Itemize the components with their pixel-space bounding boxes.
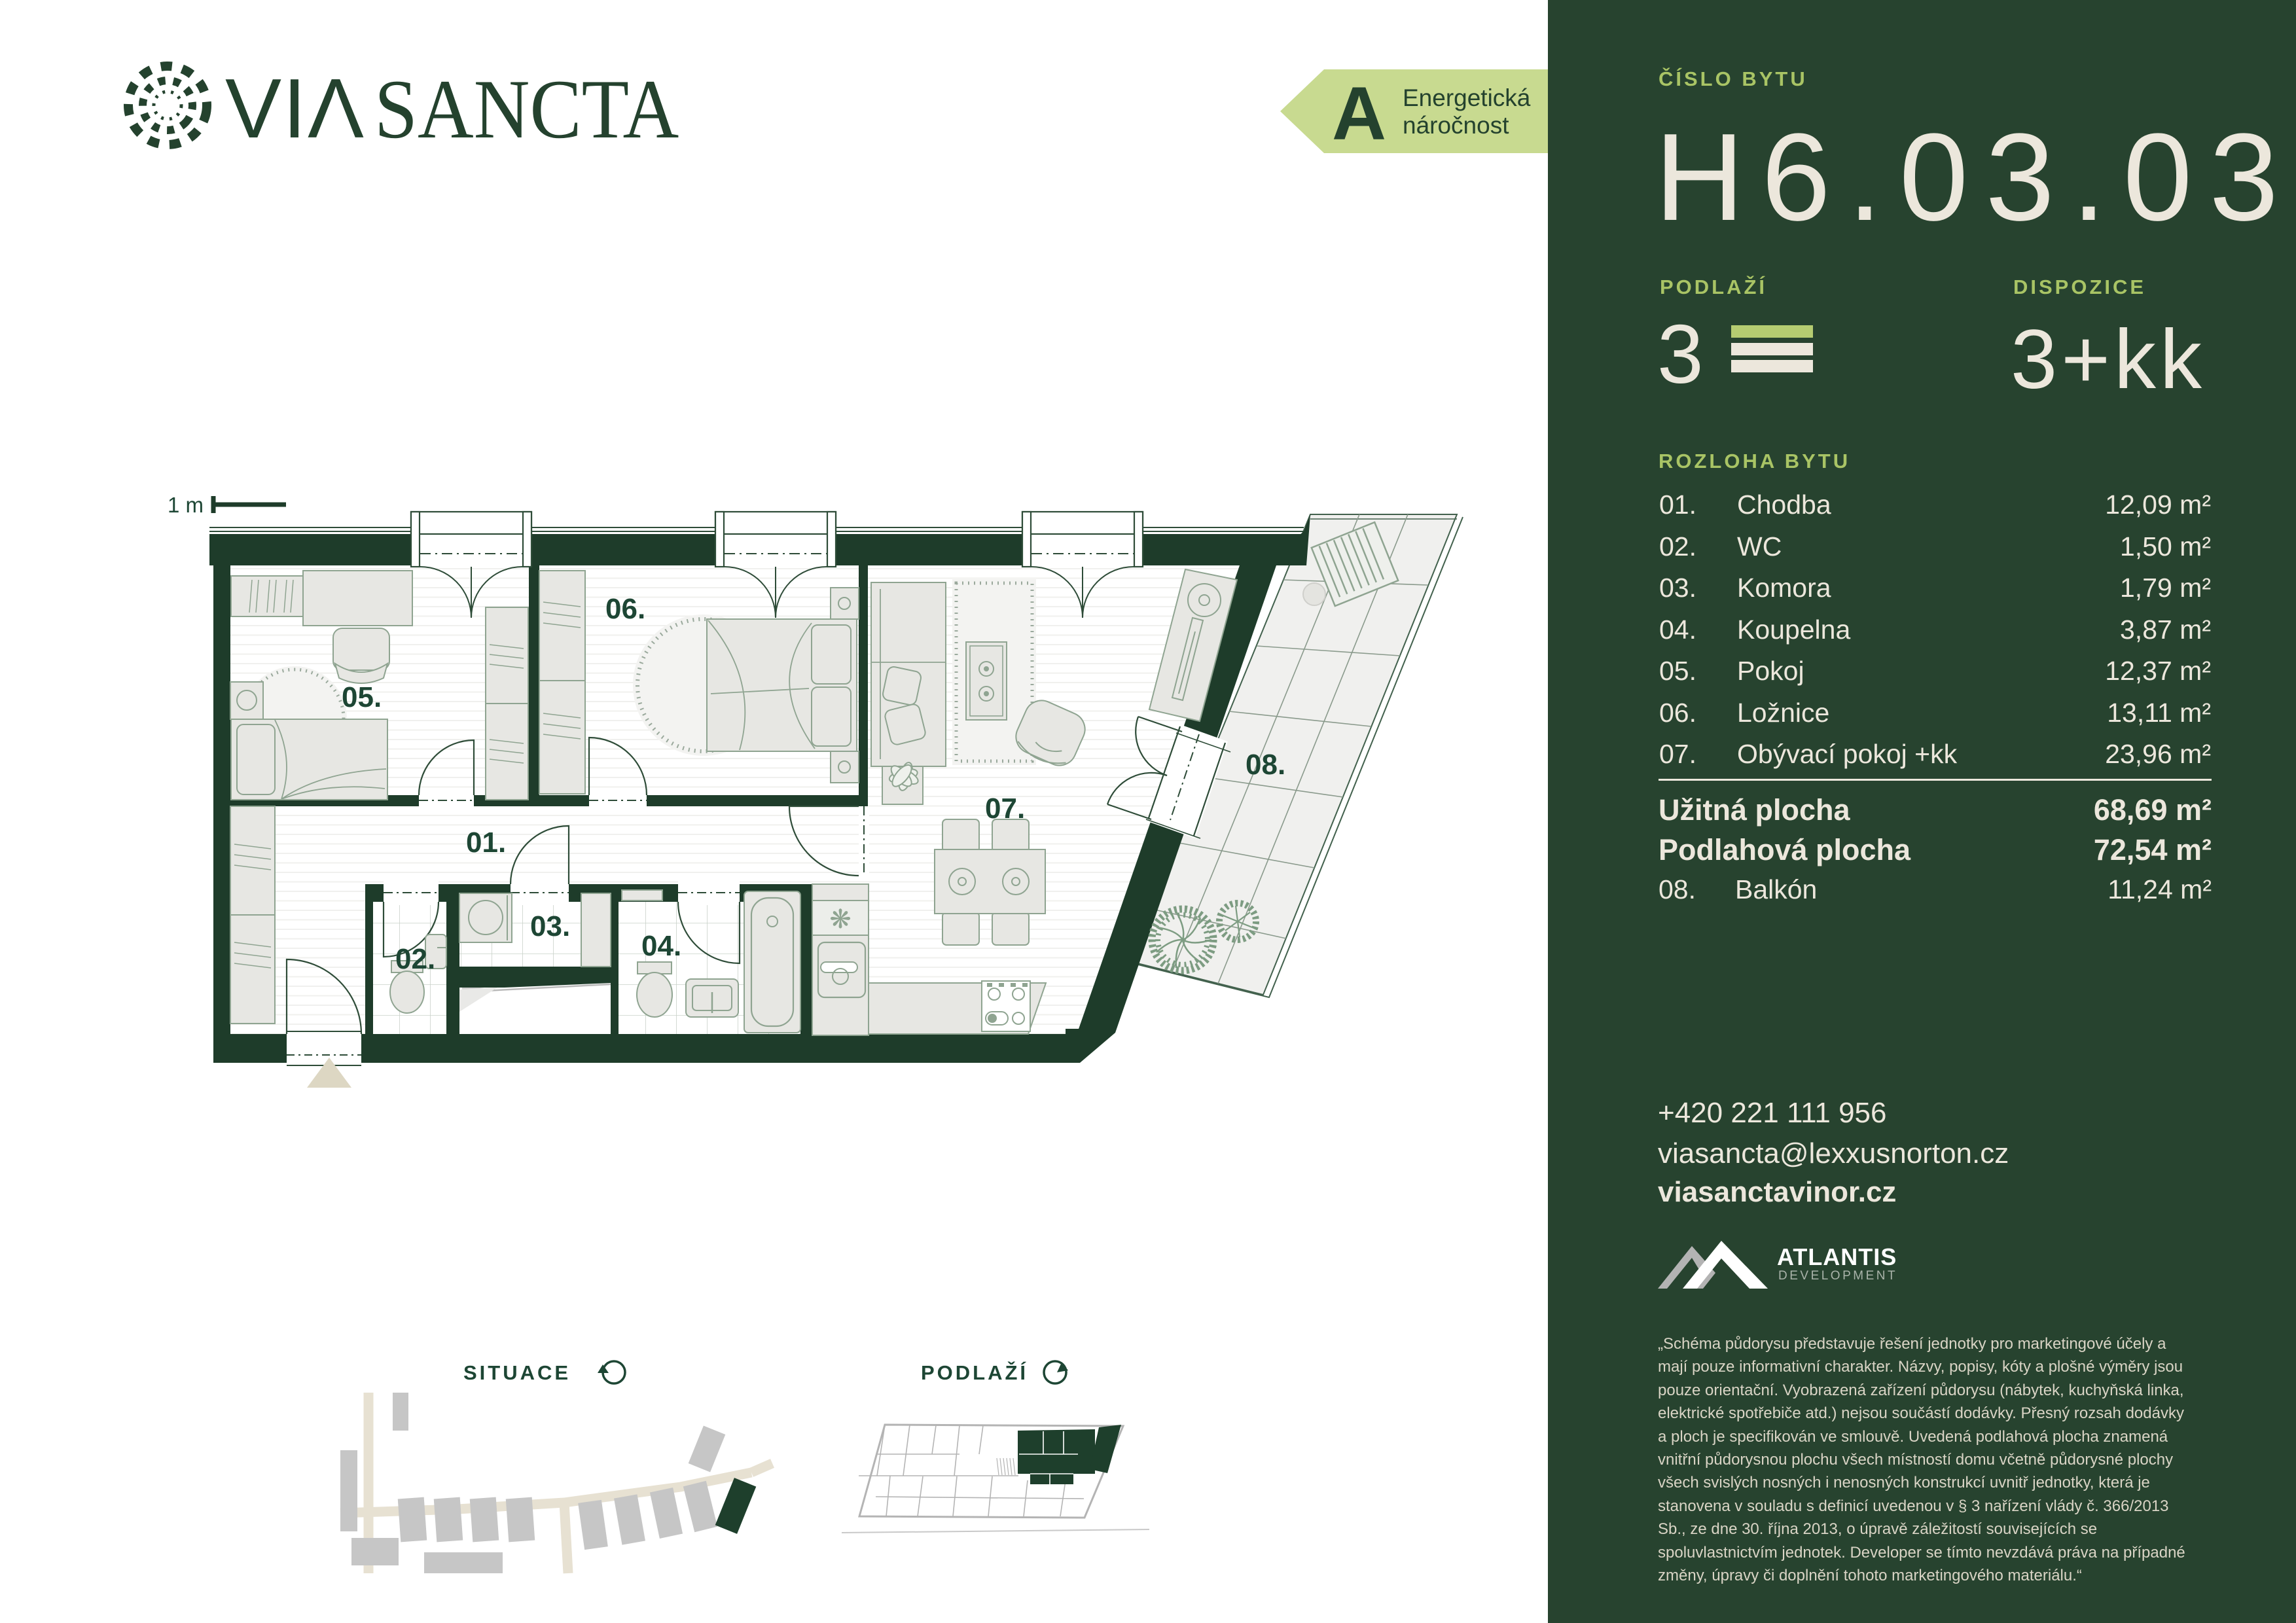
svg-text:02.: 02. — [395, 943, 435, 975]
svg-text:SITUACE: SITUACE — [463, 1361, 571, 1384]
svg-text:04.: 04. — [641, 930, 681, 962]
svg-text:❋: ❋ — [829, 905, 852, 934]
svg-text:06.: 06. — [605, 593, 645, 625]
svg-text:PODLAŽÍ: PODLAŽÍ — [921, 1361, 1028, 1384]
svg-text:01.: 01. — [466, 827, 506, 859]
svg-text:1 m: 1 m — [168, 493, 204, 517]
svg-text:08.: 08. — [1246, 749, 1285, 781]
svg-text:07.: 07. — [985, 793, 1025, 825]
svg-text:05.: 05. — [342, 681, 382, 713]
svg-text:03.: 03. — [530, 910, 570, 942]
